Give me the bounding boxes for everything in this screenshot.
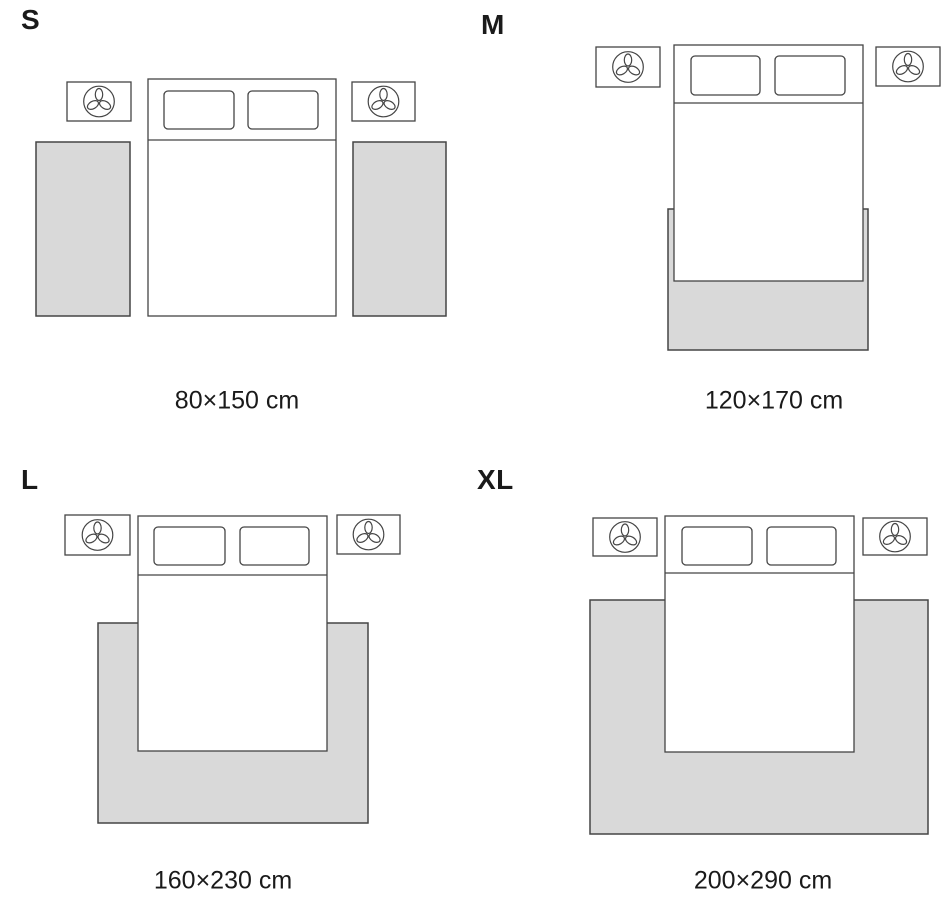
rug [36,142,130,316]
size-panel-m: M 120×170 cm [475,0,950,450]
rug-placement-diagram-l [0,450,475,900]
pillow [691,56,760,95]
rug-dimension-label-s: 80×150 cm [175,389,299,414]
nightstand [337,515,400,554]
nightstand [352,82,415,121]
size-panel-xl: XL 200×290 cm [475,450,950,900]
pillow [767,527,836,565]
pillow [164,91,234,129]
size-panel-s: S 80×150 cm [0,0,475,450]
rug-placement-diagram-xl [475,450,950,900]
pillow [154,527,225,565]
nightstand [876,47,940,86]
pillow [682,527,752,565]
rug-dimension-label-m: 120×170 cm [705,389,843,414]
size-panel-l: L 160×230 cm [0,450,475,900]
pillow [775,56,845,95]
nightstand [67,82,131,121]
rug-placement-diagram-m [475,0,950,450]
nightstand [596,47,660,87]
rug-dimension-label-l: 160×230 cm [154,869,292,894]
rug-size-guide: S 80×150 cm M 120×170 cm L 160×230 cm XL… [0,0,950,900]
size-guide-grid: S 80×150 cm M 120×170 cm L 160×230 cm XL… [0,0,950,900]
pillow [248,91,318,129]
rug [353,142,446,316]
pillow [240,527,309,565]
rug-placement-diagram-s [0,0,475,450]
nightstand [65,515,130,555]
rug-dimension-label-xl: 200×290 cm [694,869,832,894]
